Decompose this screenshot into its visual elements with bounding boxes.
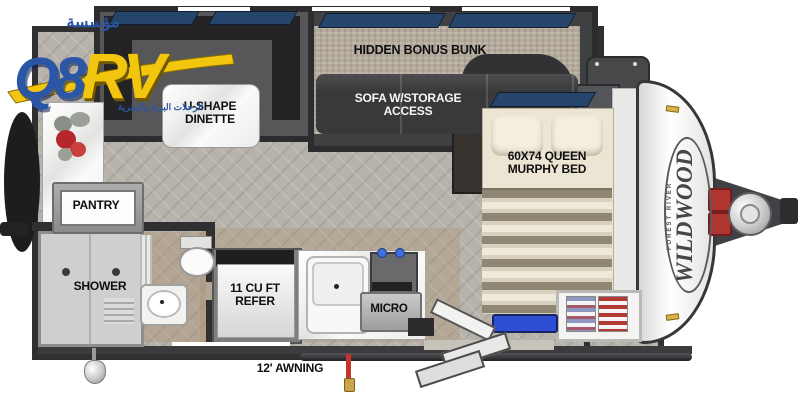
logo-arabic-tagline: الرحلات البرية والبحرية [118, 102, 240, 113]
logo-brand-q8: Q8 [14, 46, 81, 111]
bedroom-window [490, 92, 597, 107]
sofa-label: SOFA W/STORAGE ACCESS [343, 92, 473, 118]
linen-stack-1 [566, 296, 596, 332]
bunk-window-1 [318, 13, 446, 28]
q8rv-logo: مؤسسة Q8RV الرحلات البرية والبحرية [6, 6, 242, 128]
bottom-trim-1 [172, 342, 290, 346]
floorplan-canvas: HIDDEN BONUS BUNK SOFA W/STORAGE ACCESS … [0, 0, 800, 400]
hitch-coupler [780, 198, 798, 224]
rear-knob [0, 222, 28, 236]
bunk-window-2 [448, 13, 576, 28]
bath-mat [104, 298, 134, 324]
awning-label: 12' AWNING [240, 362, 340, 375]
logo-brand-text: Q8RV [14, 44, 242, 108]
storage-box-dot-2 [633, 62, 637, 66]
stove-knob-1 [377, 248, 387, 258]
awning-roller [300, 353, 692, 361]
entry-threshold [408, 318, 434, 336]
stove-band [372, 282, 412, 291]
exterior-shower-head-icon [84, 360, 106, 384]
linen-stack-2 [598, 296, 628, 332]
stove-knob-2 [395, 248, 405, 258]
awning-strap [346, 354, 351, 380]
storage-box-dot-1 [595, 62, 599, 66]
jack-wheel-hub [740, 204, 760, 224]
vanity-basin [147, 290, 181, 318]
shower-drain-2 [112, 268, 120, 276]
pantry-label: PANTRY [60, 199, 132, 212]
dinette-seat-right [272, 16, 300, 120]
bunk-label: HIDDEN BONUS BUNK [320, 44, 520, 58]
bed-label: 60X74 QUEEN MURPHY BED [487, 150, 607, 176]
wildwood-logo: FOREST RIVER WILDWOOD [664, 135, 710, 297]
sink-faucet-dot [334, 284, 339, 289]
shower-drain-1 [62, 268, 70, 276]
roof-trim-3 [462, 7, 570, 11]
awning-strap-tip [344, 378, 355, 392]
roof-trim-2 [312, 7, 430, 11]
toilet [179, 247, 215, 277]
refer-label: 11 CU FT REFER [220, 282, 290, 308]
vanity-faucet-dot [160, 300, 164, 304]
entry-mat [492, 314, 558, 333]
shower-label: SHOWER [52, 280, 148, 293]
micro-label: MICRO [360, 303, 418, 315]
